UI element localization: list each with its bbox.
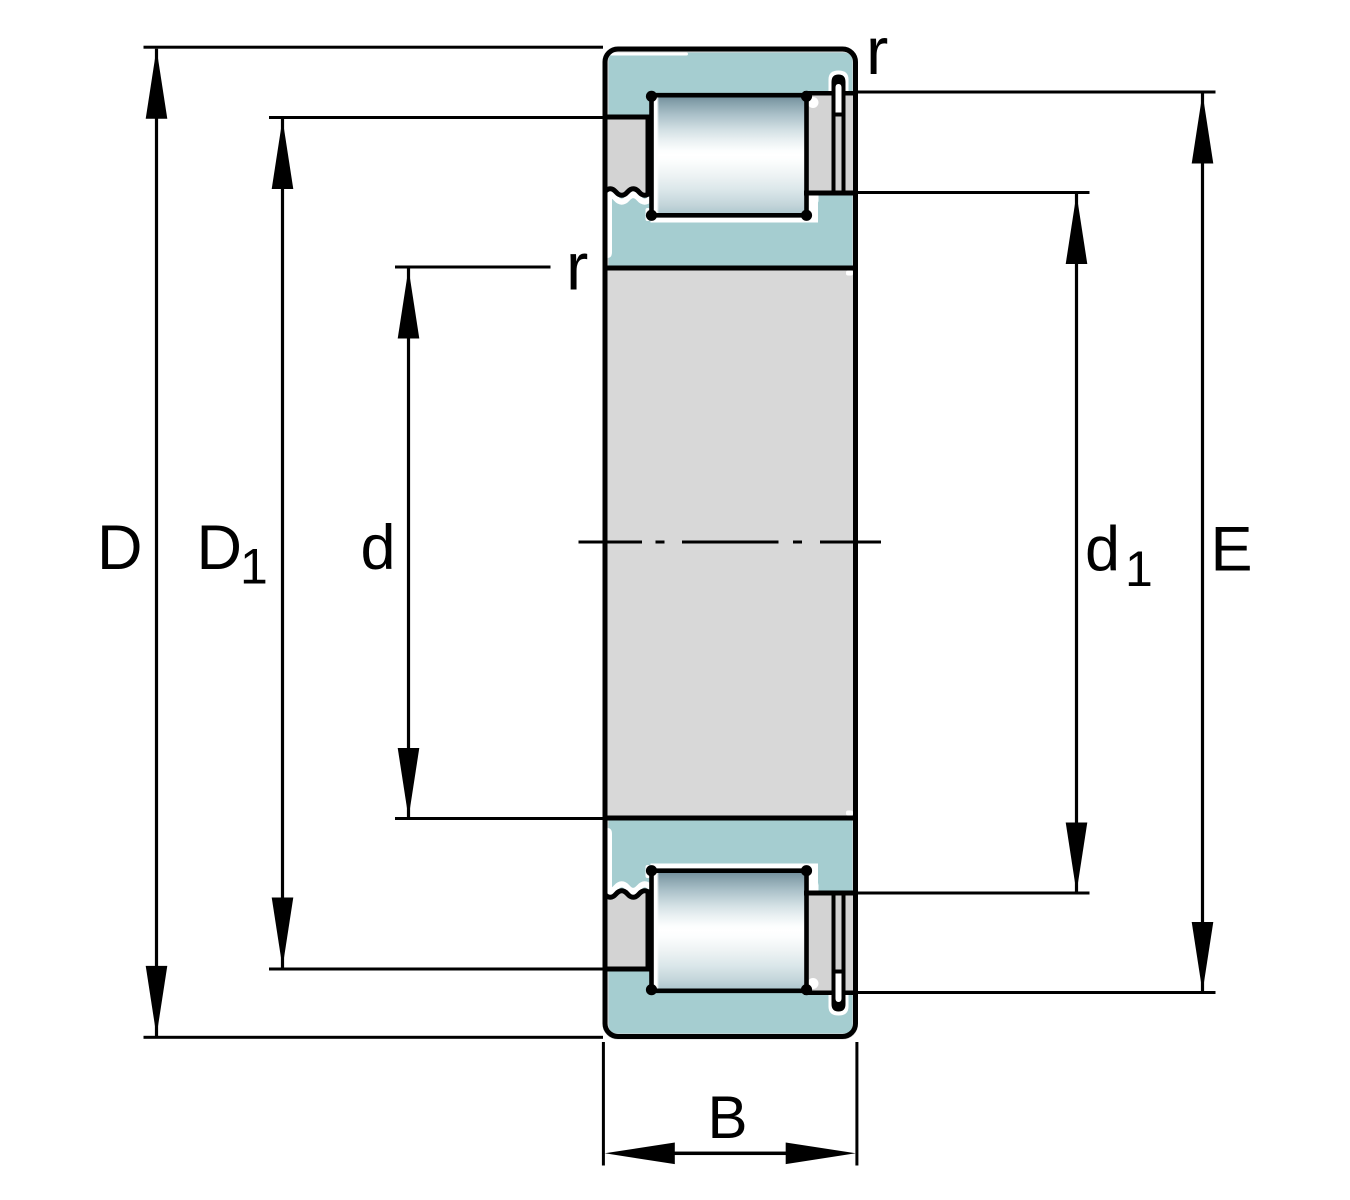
svg-text:D: D <box>97 513 143 583</box>
svg-text:d: d <box>361 513 396 583</box>
svg-text:B: B <box>708 1084 748 1151</box>
svg-text:r: r <box>866 14 888 89</box>
svg-text:d: d <box>1085 515 1120 585</box>
svg-text:r: r <box>566 230 588 305</box>
svg-text:D: D <box>197 513 243 583</box>
svg-text:1: 1 <box>1125 541 1153 597</box>
svg-text:E: E <box>1211 515 1253 585</box>
svg-text:1: 1 <box>240 539 268 595</box>
